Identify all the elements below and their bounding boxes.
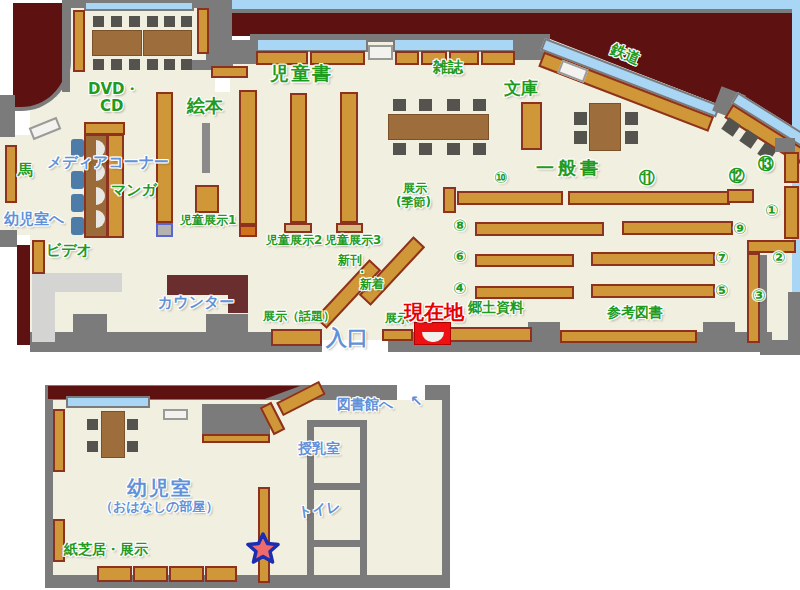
bookshelf bbox=[475, 286, 574, 299]
bookshelf bbox=[340, 92, 358, 223]
shelf-number-3: ③ bbox=[752, 288, 766, 305]
wall-left-lower bbox=[0, 230, 17, 247]
display-shelf-seasonal bbox=[443, 187, 456, 213]
bookshelf bbox=[133, 566, 168, 582]
label-display-seasonal1: 展示 bbox=[403, 182, 427, 195]
display-shelf-entrance bbox=[382, 329, 413, 341]
bookshelf bbox=[197, 8, 209, 54]
label-reference-books: 参考図書 bbox=[607, 305, 663, 320]
direction-arrow-icon: ↖ bbox=[410, 394, 423, 410]
label-kids-display1: 児童展示1 bbox=[180, 214, 236, 227]
current-location-arc bbox=[422, 332, 444, 342]
label-media-corner: メディアコーナー bbox=[47, 155, 169, 171]
bookshelf bbox=[475, 254, 574, 267]
label-picture-books: 絵本 bbox=[187, 97, 223, 116]
shelf-number-4: ④ bbox=[453, 281, 467, 298]
label-new-arrivals: 新着 bbox=[360, 278, 384, 291]
shelf-number-6: ⑥ bbox=[453, 249, 467, 266]
north-window-1 bbox=[256, 38, 368, 52]
display-table-kids1 bbox=[195, 185, 219, 213]
label-entrance: 入口 bbox=[326, 327, 368, 349]
label-magazines: 雑誌 bbox=[433, 60, 463, 76]
chair bbox=[625, 112, 638, 125]
label-display-seasonal2: (季節) bbox=[396, 196, 431, 209]
story-room-table bbox=[101, 411, 125, 458]
label-horse: 馬 bbox=[18, 163, 33, 179]
north-window-2 bbox=[393, 38, 515, 52]
reading-table bbox=[388, 114, 489, 140]
bookshelf bbox=[591, 284, 715, 298]
shelf-number-12: ⑫ bbox=[729, 168, 745, 185]
chair bbox=[164, 59, 175, 70]
label-manga: マンガ bbox=[111, 183, 157, 199]
label-current-location: 現在地 bbox=[404, 302, 464, 323]
bookshelf bbox=[5, 145, 17, 203]
annex-inner-wall-top bbox=[307, 420, 367, 427]
chair bbox=[147, 16, 158, 27]
bookshelf bbox=[239, 90, 257, 225]
chair bbox=[447, 99, 460, 111]
library-floor-map: 児童書 雑誌 文庫 鉄道 一般書 DVD・ CD 絵本 馬 メディアコーナー マ… bbox=[0, 0, 800, 590]
label-video: ビデオ bbox=[46, 243, 92, 259]
display-box bbox=[239, 225, 257, 237]
chair bbox=[473, 99, 486, 111]
label-counter: カウンター bbox=[158, 295, 234, 311]
star-marker-icon bbox=[246, 531, 280, 565]
wall-corner-step bbox=[228, 40, 258, 64]
label-local-materials: 郷土資料 bbox=[468, 300, 524, 315]
chair bbox=[181, 59, 192, 70]
reading-table bbox=[589, 103, 621, 151]
display-box bbox=[336, 223, 363, 233]
label-nursing-room: 授乳室 bbox=[298, 441, 340, 456]
bookshelf bbox=[475, 222, 604, 236]
bookshelf bbox=[784, 186, 799, 239]
bookshelf bbox=[568, 191, 730, 205]
picture-book-panel bbox=[202, 123, 210, 173]
pillar bbox=[206, 314, 248, 334]
label-childrens-books: 児童書 bbox=[270, 64, 333, 84]
bookshelf bbox=[211, 66, 248, 78]
chair bbox=[93, 59, 104, 70]
wall-right-edge bbox=[788, 292, 800, 350]
shelf-number-5: ⑤ bbox=[715, 283, 729, 300]
chair bbox=[87, 419, 98, 430]
label-dvd-cd-line1: DVD・ bbox=[88, 82, 140, 98]
label-dvd-cd-line2: CD bbox=[100, 99, 123, 115]
media-chair bbox=[71, 217, 84, 235]
annex-room-divider1 bbox=[314, 483, 360, 490]
bookshelf bbox=[205, 566, 237, 582]
shelf-number-2: ② bbox=[772, 250, 786, 267]
bookshelf bbox=[169, 566, 204, 582]
display-case bbox=[368, 45, 393, 60]
bookshelf bbox=[727, 189, 754, 203]
top-outer-wall bbox=[188, 9, 800, 13]
bookshelf bbox=[290, 93, 307, 223]
shelf-number-13: ⑬ bbox=[758, 156, 774, 173]
meeting-room-window bbox=[84, 1, 194, 11]
pillar bbox=[73, 314, 107, 334]
annex-room-divider2 bbox=[314, 540, 360, 547]
work-counter bbox=[32, 292, 55, 342]
label-kamishibai-display: 紙芝居・展示 bbox=[64, 542, 148, 557]
bookshelf bbox=[622, 221, 733, 235]
work-counter bbox=[32, 273, 122, 292]
media-chair bbox=[71, 171, 84, 189]
shelf-number-10: ⑩ bbox=[494, 170, 508, 187]
display-box bbox=[284, 223, 312, 233]
annex-wall-left bbox=[45, 385, 53, 588]
bookshelf bbox=[97, 566, 132, 582]
label-kids-display2: 児童展示2 bbox=[266, 234, 322, 247]
bookshelf bbox=[32, 240, 45, 274]
shelf-number-8: ⑧ bbox=[453, 218, 467, 235]
window-strip-top bbox=[188, 0, 800, 9]
label-infant-room: 幼児室 bbox=[127, 478, 193, 499]
pillar bbox=[703, 322, 735, 334]
current-location-marker bbox=[414, 322, 451, 345]
chair bbox=[574, 131, 587, 144]
chair bbox=[419, 99, 432, 111]
shelf-number-9: ⑨ bbox=[733, 221, 747, 238]
display-shelf-topics bbox=[271, 329, 322, 346]
chair bbox=[87, 441, 98, 452]
label-kids-display3: 児童展示3 bbox=[325, 234, 381, 247]
chair bbox=[93, 16, 104, 27]
label-general-books: 一般書 bbox=[536, 159, 602, 178]
label-story-room: （おはなしの部屋） bbox=[100, 500, 219, 514]
chair bbox=[625, 131, 638, 144]
bookshelf bbox=[784, 152, 799, 183]
chair bbox=[127, 419, 138, 430]
shelf-number-7: ⑦ bbox=[715, 250, 729, 267]
chair bbox=[473, 143, 486, 155]
shelf-number-1: ① bbox=[765, 203, 779, 220]
outside-strip-left bbox=[17, 245, 30, 345]
shelf-number-11: ⑪ bbox=[639, 170, 655, 187]
bookshelf bbox=[53, 409, 65, 472]
chair bbox=[447, 143, 460, 155]
chair bbox=[164, 16, 175, 27]
meeting-table bbox=[92, 30, 142, 56]
bookshelf bbox=[560, 330, 697, 343]
media-chair bbox=[71, 194, 84, 212]
bookshelf bbox=[447, 327, 532, 342]
label-to-library: 図書館へ bbox=[337, 397, 393, 412]
bookshelf bbox=[202, 434, 270, 443]
pillar bbox=[528, 322, 560, 334]
chair bbox=[147, 59, 158, 70]
chair bbox=[419, 143, 432, 155]
display-box bbox=[156, 223, 173, 237]
wall-left-upper bbox=[0, 95, 15, 137]
bookshelf bbox=[481, 51, 515, 65]
annex-wall-right bbox=[442, 385, 450, 588]
bookshelf bbox=[395, 51, 419, 65]
meeting-table bbox=[143, 30, 192, 56]
bookshelf bbox=[457, 191, 563, 205]
chair bbox=[181, 16, 192, 27]
annex-window bbox=[66, 396, 150, 408]
chair bbox=[111, 59, 122, 70]
chair bbox=[129, 59, 140, 70]
meeting-room-wall-left bbox=[62, 0, 70, 92]
chair bbox=[393, 143, 406, 155]
chair bbox=[129, 16, 140, 27]
chair bbox=[111, 16, 122, 27]
bookshelf bbox=[73, 10, 85, 72]
bookshelf bbox=[521, 102, 542, 150]
chair bbox=[574, 112, 587, 125]
chair bbox=[127, 441, 138, 452]
wall-right-corner bbox=[775, 138, 795, 152]
display-case bbox=[163, 409, 188, 420]
label-display-topics: 展示（話題） bbox=[263, 310, 335, 323]
label-bunko: 文庫 bbox=[504, 80, 538, 98]
label-to-infant-room: 幼児室へ bbox=[4, 212, 64, 228]
chair bbox=[393, 99, 406, 111]
annex-inner-wall-v2 bbox=[360, 420, 367, 575]
bookshelf bbox=[591, 252, 715, 266]
